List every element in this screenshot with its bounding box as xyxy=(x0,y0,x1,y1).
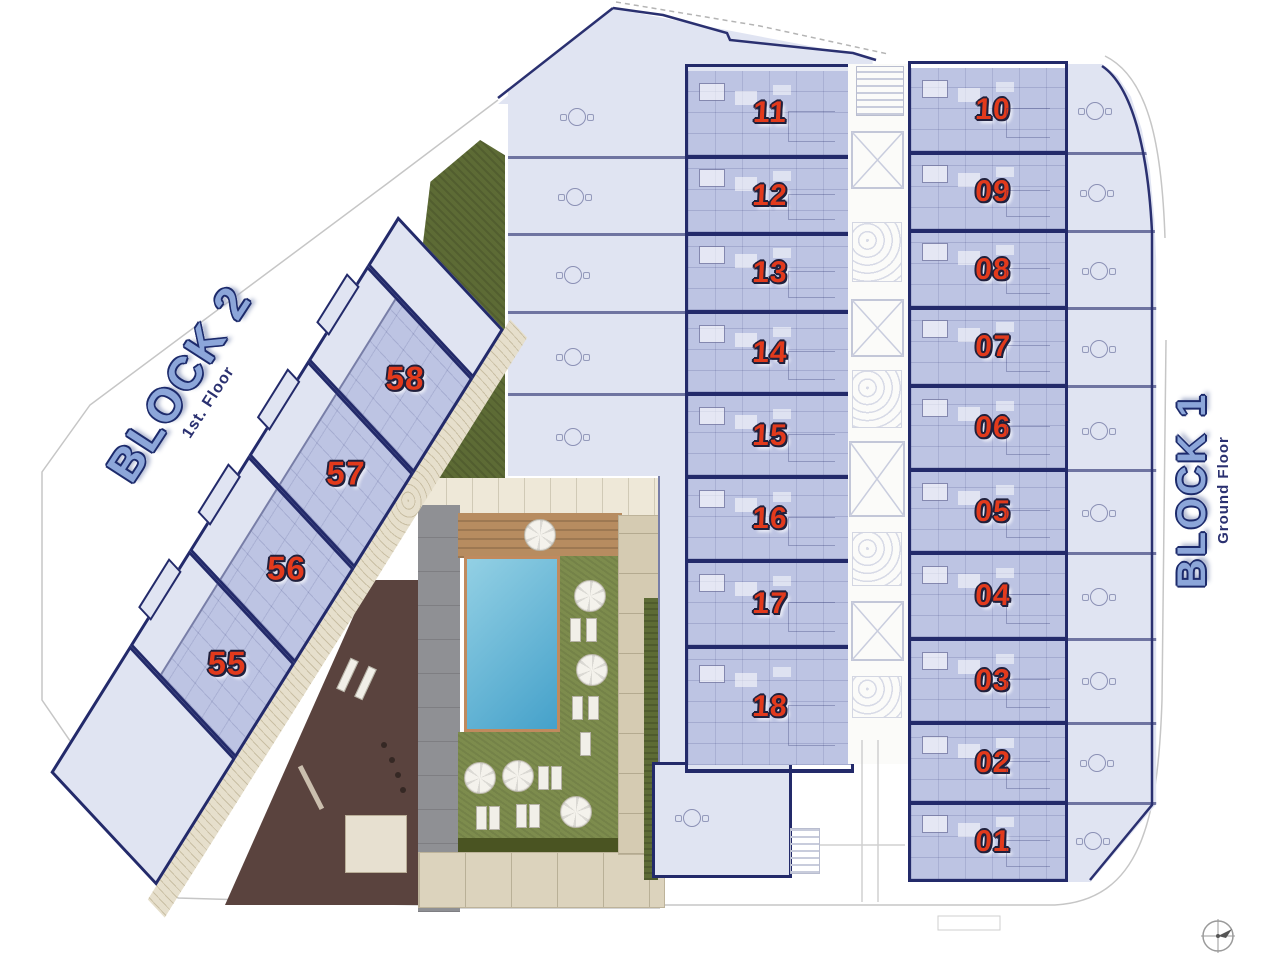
patio-panel xyxy=(852,676,902,718)
sun-lounger-icon xyxy=(570,618,581,642)
umbrella-icon xyxy=(576,654,608,686)
elevator-shaft-icon xyxy=(850,130,905,190)
patio-panel xyxy=(852,370,902,428)
unit-12[interactable]: 12 xyxy=(688,159,851,236)
terrace-table-icon xyxy=(564,348,582,366)
terrace-table-icon xyxy=(1088,754,1106,772)
unit-17[interactable]: 17 xyxy=(688,563,851,649)
terrace-unit-18 xyxy=(652,762,792,878)
terrace-table-icon xyxy=(568,108,586,126)
unit-13[interactable]: 13 xyxy=(688,236,851,314)
terrace-table-icon xyxy=(1090,672,1108,690)
patio-panel xyxy=(852,222,902,282)
unit-05[interactable]: 05 xyxy=(911,472,1065,555)
unit-04[interactable]: 04 xyxy=(911,555,1065,641)
terrace-divider xyxy=(508,156,685,159)
unit-number: 17 xyxy=(751,589,788,619)
unit-09[interactable]: 09 xyxy=(911,155,1065,233)
unit-number: 06 xyxy=(974,413,1011,443)
terrace-divider xyxy=(1068,638,1158,641)
terrace-table-icon xyxy=(1084,832,1102,850)
unit-number: 13 xyxy=(751,258,788,288)
gym-equipment-icon xyxy=(400,787,406,793)
elevator-shaft-icon xyxy=(848,440,906,518)
terrace-table-icon xyxy=(1090,262,1108,280)
terrace-table-icon xyxy=(564,266,582,284)
unit-number: 16 xyxy=(751,504,788,534)
umbrella-icon xyxy=(560,796,592,828)
terrace-divider xyxy=(1068,469,1158,472)
unit-15[interactable]: 15 xyxy=(688,396,851,479)
service-path xyxy=(418,505,460,912)
unit-number: 12 xyxy=(751,181,788,211)
unit-number: 01 xyxy=(974,827,1011,857)
sun-lounger-icon xyxy=(336,658,359,693)
stairs-icon xyxy=(790,828,820,874)
unit-number: 57 xyxy=(326,457,366,490)
unit-18[interactable]: 18 xyxy=(688,649,851,765)
block1-floor: Ground Floor xyxy=(1215,370,1232,610)
elevator-shaft-icon xyxy=(850,600,905,662)
umbrella-icon xyxy=(502,760,534,792)
sun-lounger-icon xyxy=(489,806,500,830)
terrace-divider xyxy=(1068,802,1158,805)
terrace-table-icon xyxy=(1090,422,1108,440)
terrace-column-middle xyxy=(508,8,685,476)
terrace-divider xyxy=(1068,552,1158,555)
terrace-table-icon xyxy=(1088,184,1106,202)
stairs-icon xyxy=(856,66,904,116)
terrace-table-icon xyxy=(1090,504,1108,522)
umbrella-icon xyxy=(464,762,496,794)
unit-number: 14 xyxy=(751,338,788,368)
terrace-strip xyxy=(658,476,685,762)
compass-icon xyxy=(1201,919,1235,953)
block1-right-units: 10 09 08 07 06 05 04 03 02 01 xyxy=(908,61,1068,882)
unit-number: 05 xyxy=(974,497,1011,527)
utility-pad xyxy=(345,815,407,873)
terrace-divider xyxy=(1068,230,1158,233)
terrace-table-icon xyxy=(566,188,584,206)
unit-06[interactable]: 06 xyxy=(911,388,1065,472)
unit-11[interactable]: 11 xyxy=(688,71,851,159)
stone-walkway xyxy=(418,852,665,908)
umbrella-icon xyxy=(574,580,606,612)
terrace-divider xyxy=(508,311,685,314)
sun-lounger-icon xyxy=(580,732,591,756)
site-plan: 11 12 13 14 15 16 17 18 xyxy=(0,0,1280,960)
unit-number: 03 xyxy=(974,666,1011,696)
terrace-table-icon xyxy=(564,428,582,446)
unit-10[interactable]: 10 xyxy=(911,68,1065,155)
unit-number: 56 xyxy=(267,551,307,584)
swimming-pool xyxy=(464,556,560,732)
unit-14[interactable]: 14 xyxy=(688,314,851,396)
terrace-table-icon xyxy=(1090,340,1108,358)
sun-lounger-icon xyxy=(586,618,597,642)
unit-number: 55 xyxy=(207,646,247,679)
unit-number: 02 xyxy=(974,748,1011,778)
sun-lounger-icon xyxy=(572,696,583,720)
sun-lounger-icon xyxy=(516,804,527,828)
unit-01[interactable]: 01 xyxy=(911,805,1065,879)
unit-number: 58 xyxy=(385,362,425,395)
terrace-table-icon xyxy=(1090,588,1108,606)
gym-equipment-icon xyxy=(389,757,395,763)
unit-03[interactable]: 03 xyxy=(911,641,1065,725)
elevator-shaft-icon xyxy=(850,298,905,358)
block1-title: BLOCK 1 xyxy=(1172,370,1212,610)
block1-label: BLOCK 1 Ground Floor xyxy=(1172,370,1232,610)
hedge-band xyxy=(458,838,622,852)
terrace-table-icon xyxy=(683,809,701,827)
terrace-divider xyxy=(1068,307,1158,310)
unit-number: 18 xyxy=(751,692,788,722)
sun-lounger-icon xyxy=(538,766,549,790)
unit-number: 07 xyxy=(974,332,1011,362)
sun-lounger-icon xyxy=(551,766,562,790)
terrace-divider xyxy=(508,393,685,396)
block1-middle-units: 11 12 13 14 15 16 17 18 xyxy=(685,64,854,773)
bench-icon xyxy=(298,765,324,810)
unit-number: 11 xyxy=(752,98,787,128)
terrace-divider xyxy=(1068,385,1158,388)
sun-lounger-icon xyxy=(354,666,377,701)
sun-lounger-icon xyxy=(476,806,487,830)
terrace-column-right xyxy=(1068,64,1158,882)
lawn xyxy=(458,732,560,840)
unit-number: 09 xyxy=(974,177,1011,207)
pool-deck xyxy=(458,513,622,558)
unit-number: 04 xyxy=(974,581,1011,611)
unit-07[interactable]: 07 xyxy=(911,310,1065,388)
unit-number: 10 xyxy=(974,95,1011,125)
gym-equipment-icon xyxy=(381,742,387,748)
terrace-table-icon xyxy=(1086,102,1104,120)
sun-lounger-icon xyxy=(588,696,599,720)
unit-number: 08 xyxy=(974,255,1011,285)
terrace-divider xyxy=(508,233,685,236)
unit-02[interactable]: 02 xyxy=(911,725,1065,805)
umbrella-icon xyxy=(524,519,556,551)
terrace-divider xyxy=(1068,722,1158,725)
unit-08[interactable]: 08 xyxy=(911,233,1065,310)
unit-16[interactable]: 16 xyxy=(688,479,851,563)
unit-number: 15 xyxy=(751,421,788,451)
corridor-core xyxy=(848,64,908,764)
sun-lounger-icon xyxy=(529,804,540,828)
patio-panel xyxy=(852,532,902,586)
gym-equipment-icon xyxy=(395,772,401,778)
terrace-divider xyxy=(1068,152,1158,155)
